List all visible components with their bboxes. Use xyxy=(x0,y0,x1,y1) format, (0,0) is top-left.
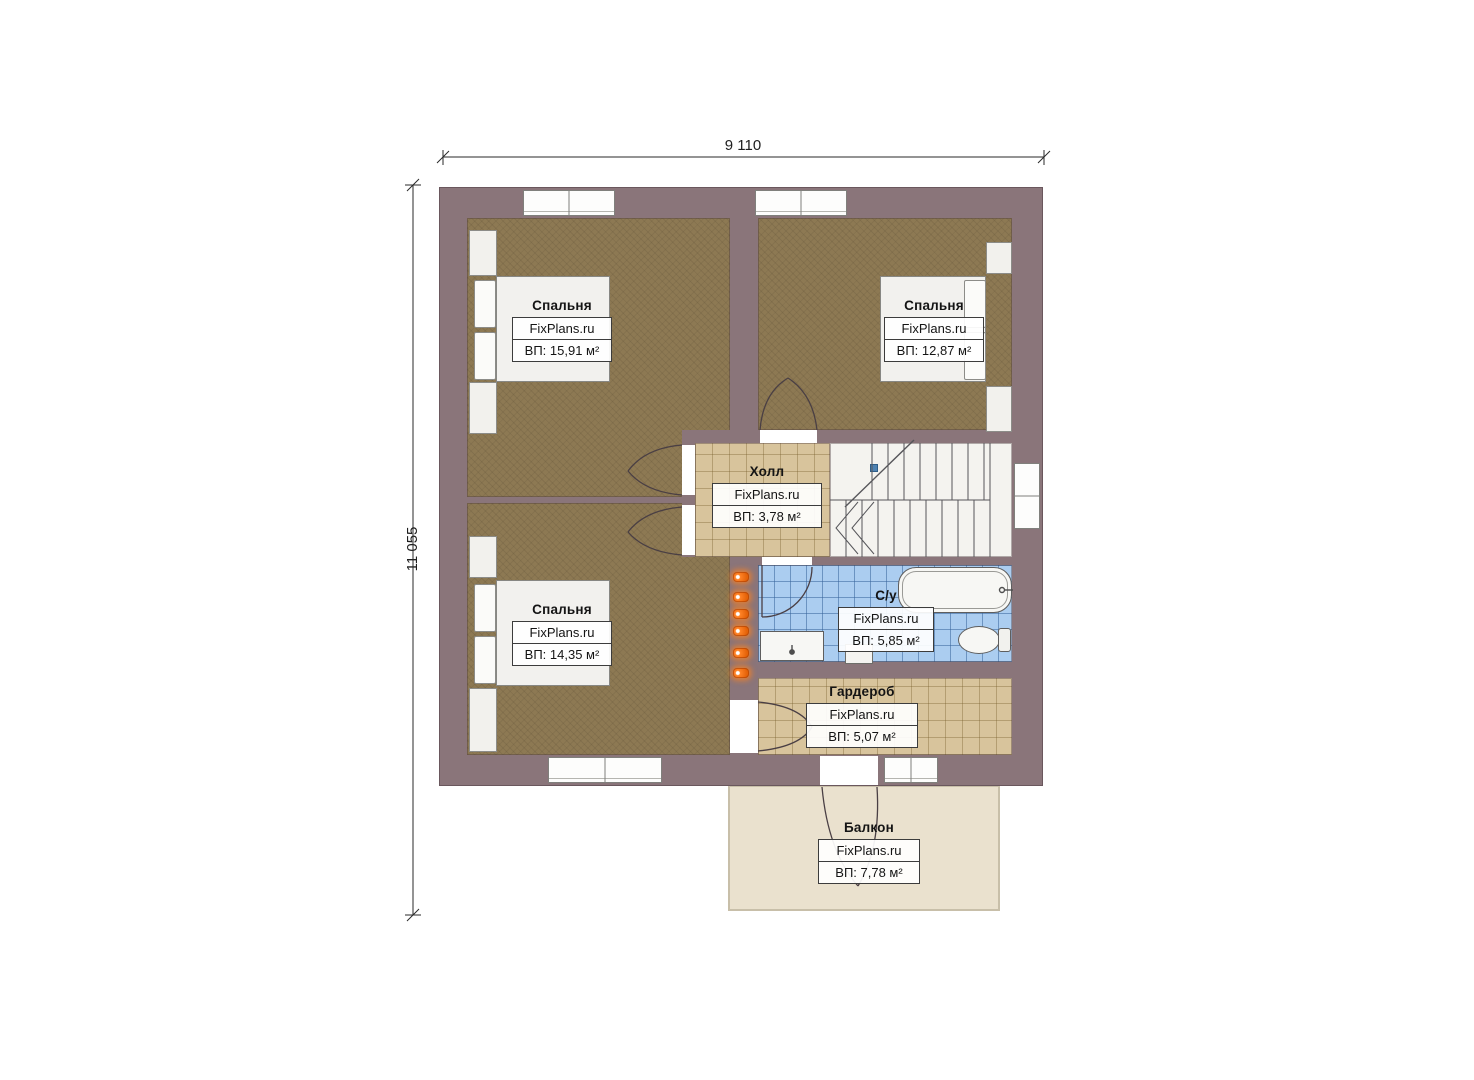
pillow-icon xyxy=(474,584,496,632)
room-brand: FixPlans.ru xyxy=(513,318,611,339)
closet-bl-lower xyxy=(469,688,497,752)
dimension-top-label: 9 110 xyxy=(693,137,793,154)
pillow-icon xyxy=(474,332,496,380)
room-brand: FixPlans.ru xyxy=(885,318,983,339)
door-opening-to-bathroom xyxy=(762,557,812,565)
toilet xyxy=(958,626,1000,654)
room-brand: FixPlans.ru xyxy=(819,840,919,861)
room-brand: FixPlans.ru xyxy=(713,484,821,505)
power-socket-icon xyxy=(733,592,749,602)
dimension-left-label: 11 055 xyxy=(404,504,422,594)
power-socket-icon xyxy=(733,668,749,678)
pillow-icon xyxy=(474,636,496,684)
room-label-box: FixPlans.ru ВП: 5,07 м² xyxy=(806,703,918,748)
room-area: ВП: 12,87 м² xyxy=(885,339,983,361)
room-name: Гардероб xyxy=(806,682,918,701)
window-balcony xyxy=(884,757,938,783)
room-name: Балкон xyxy=(818,818,920,837)
room-area: ВП: 14,35 м² xyxy=(513,643,611,665)
closet-tr-lower xyxy=(986,386,1012,432)
window-top-left xyxy=(523,190,615,216)
room-area: ВП: 7,78 м² xyxy=(819,861,919,883)
window-top-right xyxy=(755,190,847,216)
room-label-bathroom: С/у FixPlans.ru ВП: 5,85 м² xyxy=(838,586,934,652)
room-area: ВП: 5,07 м² xyxy=(807,725,917,747)
room-label-box: FixPlans.ru ВП: 14,35 м² xyxy=(512,621,612,666)
room-label-box: FixPlans.ru ВП: 7,78 м² xyxy=(818,839,920,884)
room-label-bedroom-top-left: Спальня FixPlans.ru ВП: 15,91 м² xyxy=(512,296,612,362)
room-area: ВП: 5,85 м² xyxy=(839,629,933,651)
room-name: Холл xyxy=(712,462,822,481)
room-area: ВП: 15,91 м² xyxy=(513,339,611,361)
room-label-bedroom-bottom-left: Спальня FixPlans.ru ВП: 14,35 м² xyxy=(512,600,612,666)
toilet-tank xyxy=(998,628,1011,652)
power-socket-icon xyxy=(733,626,749,636)
room-label-box: FixPlans.ru ВП: 3,78 м² xyxy=(712,483,822,528)
room-brand: FixPlans.ru xyxy=(839,608,933,629)
room-label-box: FixPlans.ru ВП: 5,85 м² xyxy=(838,607,934,652)
room-name: Спальня xyxy=(884,296,984,315)
room-label-hall: Холл FixPlans.ru ВП: 3,78 м² xyxy=(712,462,822,528)
door-opening-hall-to-bedroom-bl xyxy=(682,505,695,555)
door-opening-hall-to-bedroom-tl xyxy=(682,445,695,495)
door-opening-hall-to-bedroom-tr xyxy=(760,430,817,443)
room-label-wardrobe: Гардероб FixPlans.ru ВП: 5,07 м² xyxy=(806,682,918,748)
room-label-balcony: Балкон FixPlans.ru ВП: 7,78 м² xyxy=(818,818,920,884)
power-socket-icon xyxy=(733,648,749,658)
power-socket-icon xyxy=(733,609,749,619)
window-bottom-left xyxy=(548,757,662,783)
floor-stairs xyxy=(830,443,1012,557)
room-label-box: FixPlans.ru ВП: 12,87 м² xyxy=(884,317,984,362)
room-area: ВП: 3,78 м² xyxy=(713,505,821,527)
room-label-bedroom-top-right: Спальня FixPlans.ru ВП: 12,87 м² xyxy=(884,296,984,362)
room-brand: FixPlans.ru xyxy=(513,622,611,643)
power-socket-icon xyxy=(733,572,749,582)
door-opening-to-wardrobe xyxy=(730,700,758,753)
room-label-box: FixPlans.ru ВП: 15,91 м² xyxy=(512,317,612,362)
closet-tr-upper xyxy=(986,242,1012,274)
room-name: С/у xyxy=(838,586,934,605)
room-name: Спальня xyxy=(512,600,612,619)
door-opening-to-balcony xyxy=(820,756,878,785)
pillow-icon xyxy=(474,280,496,328)
closet-bl-upper xyxy=(469,536,497,578)
closet-tl-lower xyxy=(469,382,497,434)
floor-plan-canvas: 9 110 11 055 xyxy=(0,0,1474,1080)
sink-counter xyxy=(760,631,824,661)
window-right-stairs xyxy=(1014,463,1040,529)
closet-tl-upper xyxy=(469,230,497,276)
stair-break-handle-icon xyxy=(870,464,878,472)
room-brand: FixPlans.ru xyxy=(807,704,917,725)
wall-hall-top xyxy=(695,430,1012,443)
room-name: Спальня xyxy=(512,296,612,315)
